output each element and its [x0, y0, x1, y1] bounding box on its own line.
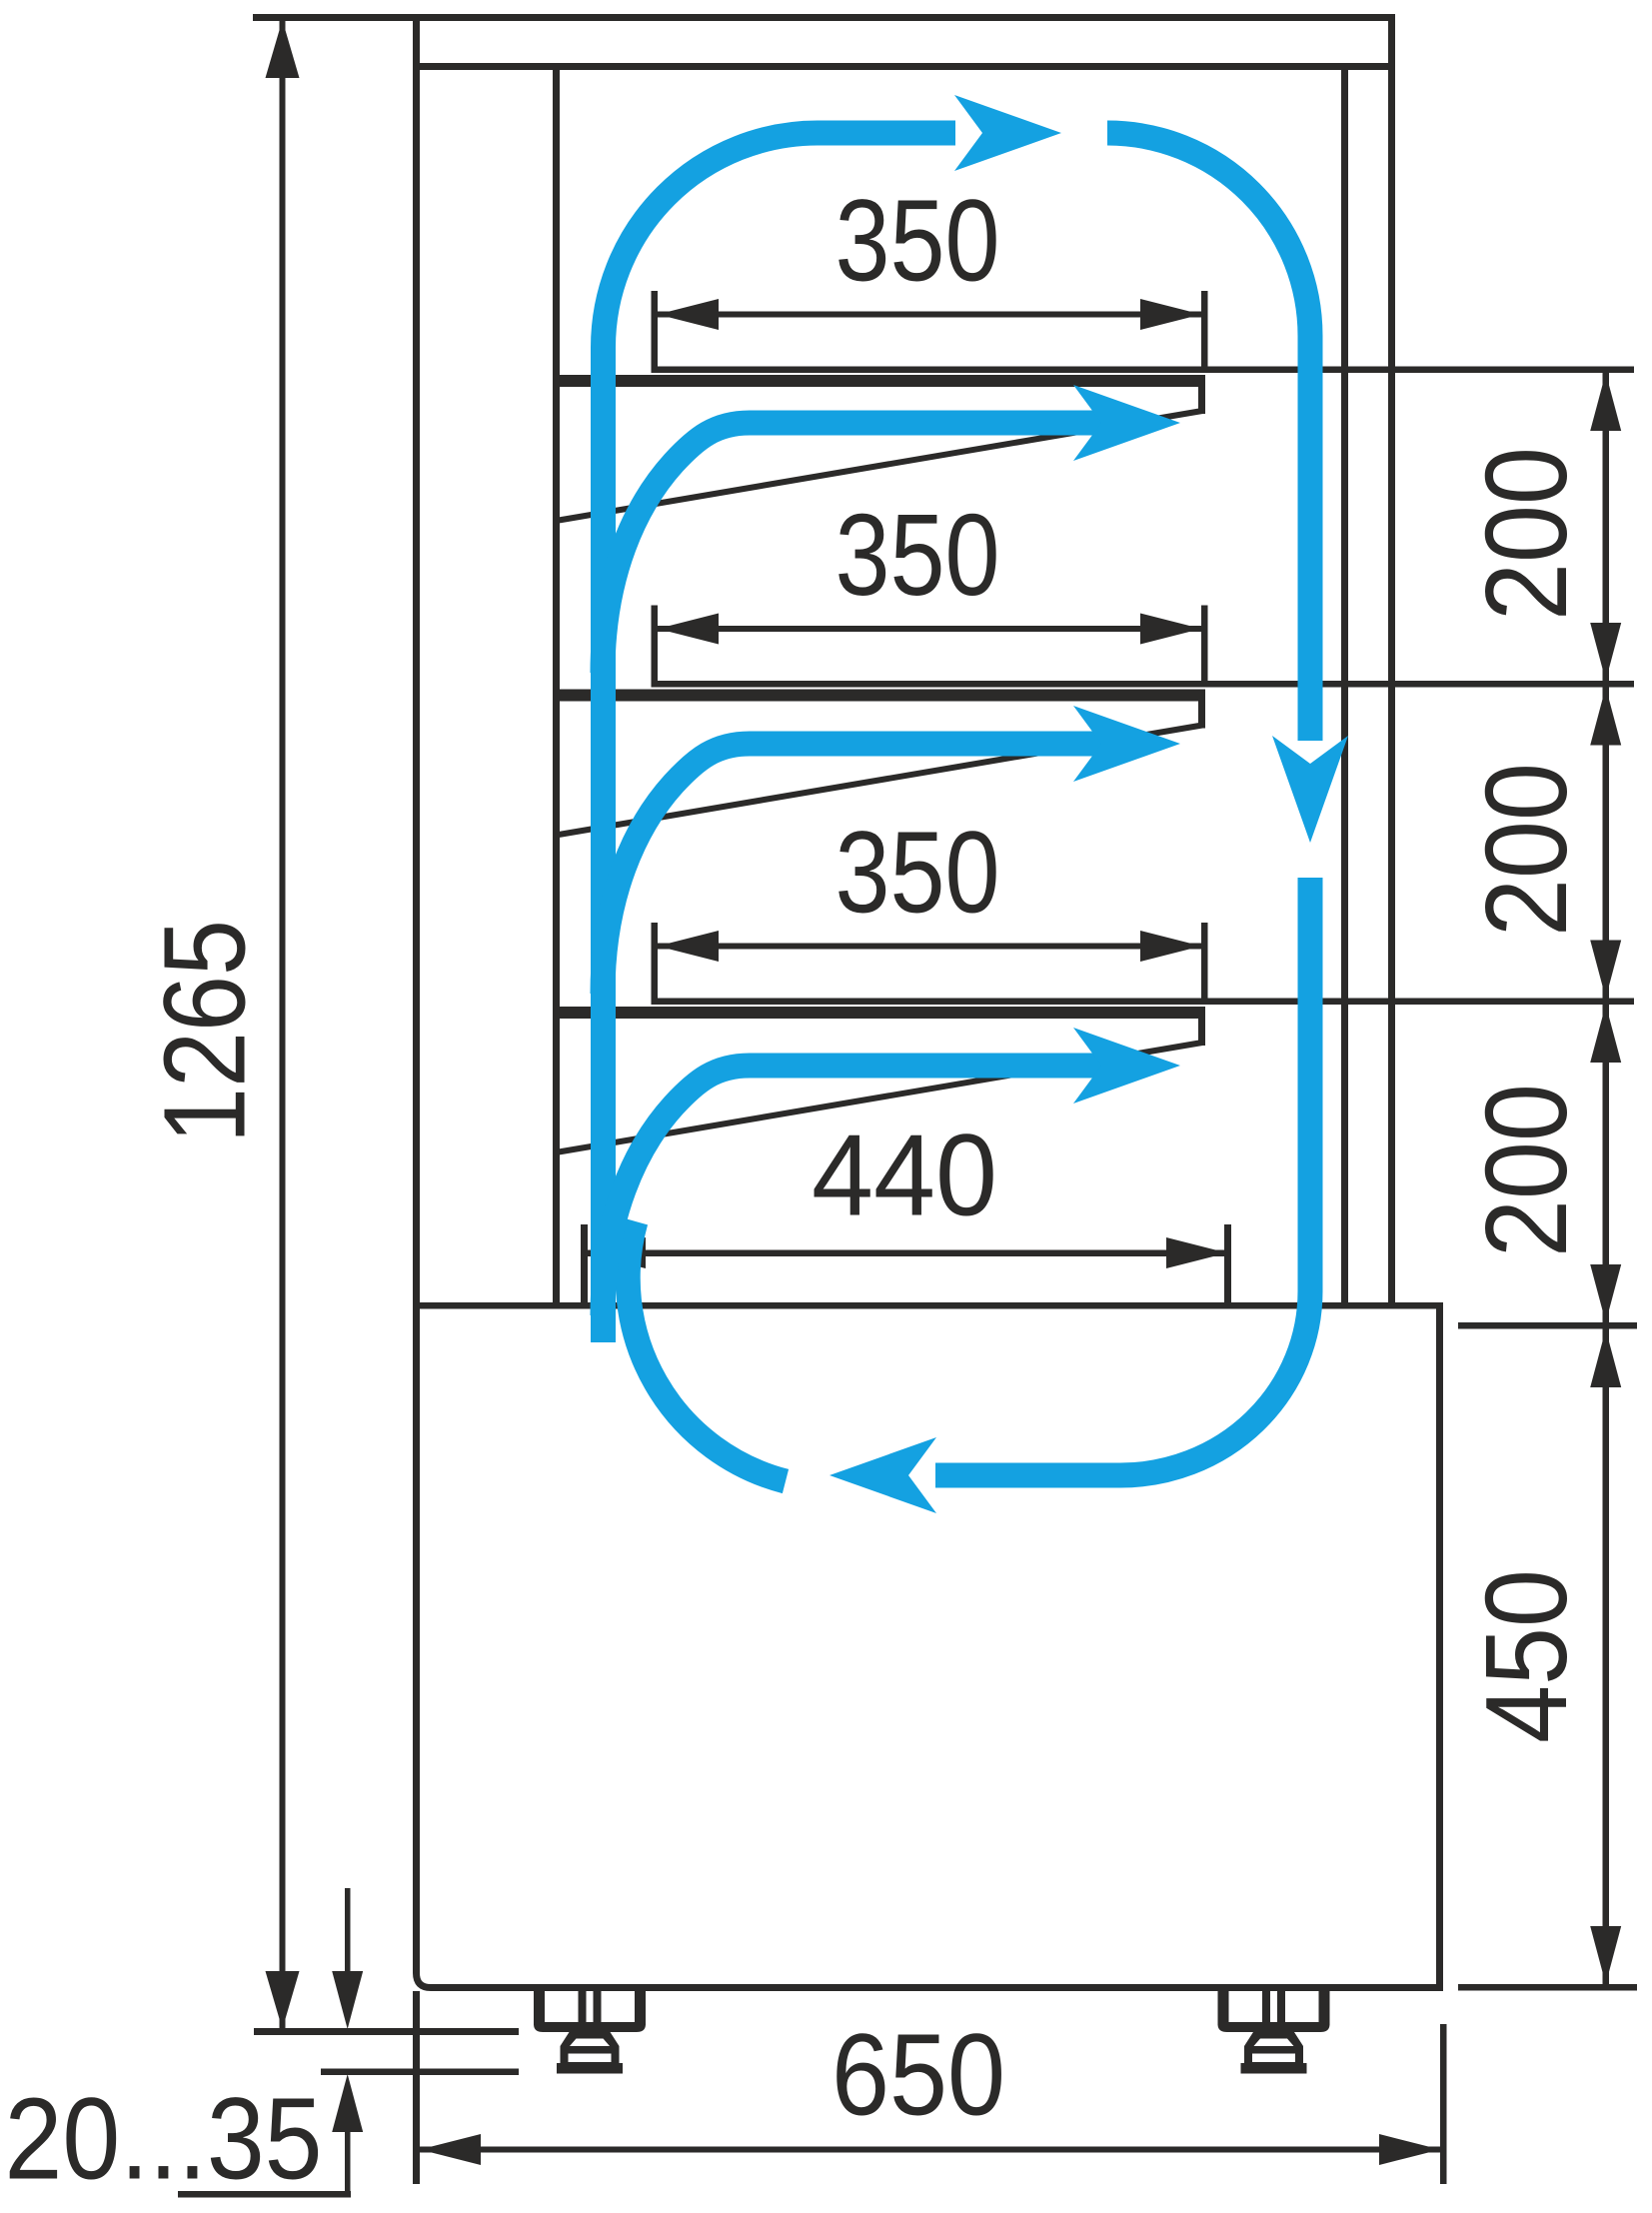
- svg-text:200: 200: [1461, 1084, 1591, 1257]
- svg-text:350: 350: [835, 807, 1000, 937]
- svg-text:200: 200: [1461, 763, 1591, 937]
- svg-text:20...35: 20...35: [5, 2073, 323, 2203]
- svg-text:440: 440: [812, 1109, 997, 1239]
- svg-text:200: 200: [1461, 447, 1591, 621]
- svg-text:350: 350: [835, 175, 1000, 305]
- svg-text:650: 650: [831, 2009, 1005, 2139]
- svg-text:450: 450: [1461, 1569, 1591, 1743]
- svg-text:350: 350: [835, 490, 1000, 620]
- svg-text:1265: 1265: [139, 920, 269, 1143]
